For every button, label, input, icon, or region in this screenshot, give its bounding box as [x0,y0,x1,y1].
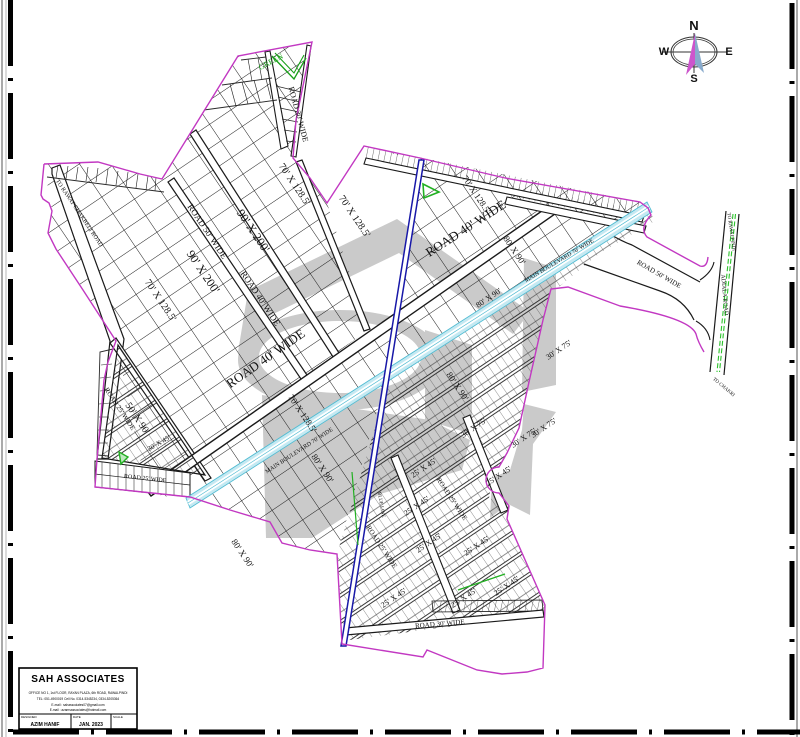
svg-text:ADIALA ROAD: ADIALA ROAD [719,274,729,316]
svg-text:AZIM HANIF: AZIM HANIF [31,722,60,728]
svg-text:70' X 128.5': 70' X 128.5' [336,193,372,239]
svg-text:N: N [689,18,698,33]
svg-text:E: E [725,46,732,58]
svg-text:S: S [690,73,697,85]
svg-text:W: W [659,46,670,58]
svg-text:JAN. 2023: JAN. 2023 [79,722,103,728]
svg-text:TO CHAKRI: TO CHAKRI [711,377,735,398]
svg-text:80' X 90': 80' X 90' [229,537,256,570]
svg-text:DESIGNED: DESIGNED [21,715,38,719]
svg-text:SCALE: SCALE [113,715,123,719]
svg-text:TEL: 051-4900019 Cell No. 03: TEL: 051-4900019 Cell No. 0314-5345234, … [37,697,120,701]
svg-text:DATE: DATE [73,715,81,719]
svg-text:E-mail : azamsassociates@hotm: E-mail : azamsassociates@hotmail.com [50,708,107,712]
svg-text:E-mail : sahassociates07@gmai: E-mail : sahassociates07@gmail.com [51,703,105,707]
svg-text:OFFICE NO 1, 1st FLOOR, RAYAN: OFFICE NO 1, 1st FLOOR, RAYAN PLAZA, 6th… [29,691,128,695]
svg-text:SAH ASSOCIATES: SAH ASSOCIATES [31,674,124,685]
